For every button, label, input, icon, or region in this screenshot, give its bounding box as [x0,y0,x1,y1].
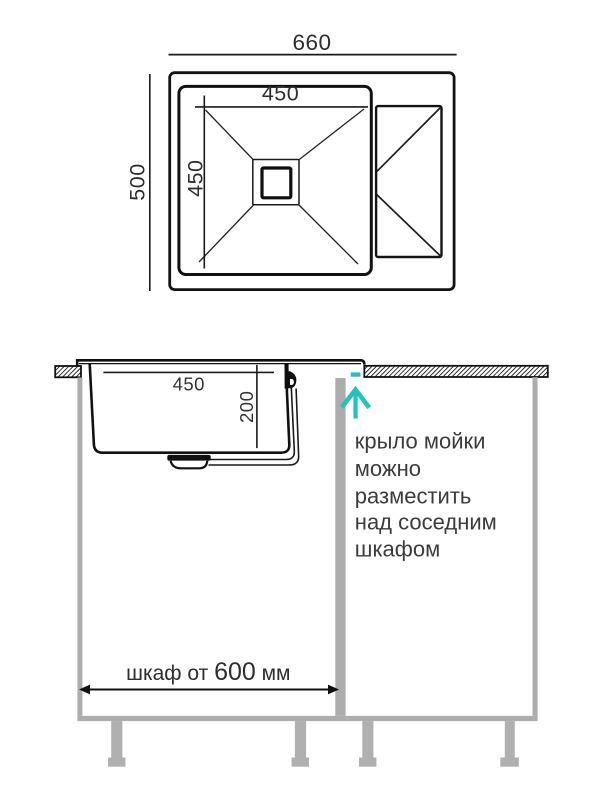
svg-text:450: 450 [183,160,207,197]
svg-text:450: 450 [262,82,299,106]
svg-text:над соседним: над соседним [355,510,497,535]
svg-text:500: 500 [126,163,150,200]
svg-text:шкаф от 600 мм: шкаф от 600 мм [126,658,290,686]
svg-text:шкафом: шкафом [355,537,440,562]
svg-text:200: 200 [236,391,257,423]
svg-text:можно: можно [355,456,421,481]
svg-text:разместить: разместить [355,483,472,508]
svg-text:крыло мойки: крыло мойки [355,429,486,454]
svg-text:660: 660 [292,30,331,55]
svg-text:450: 450 [173,374,205,395]
